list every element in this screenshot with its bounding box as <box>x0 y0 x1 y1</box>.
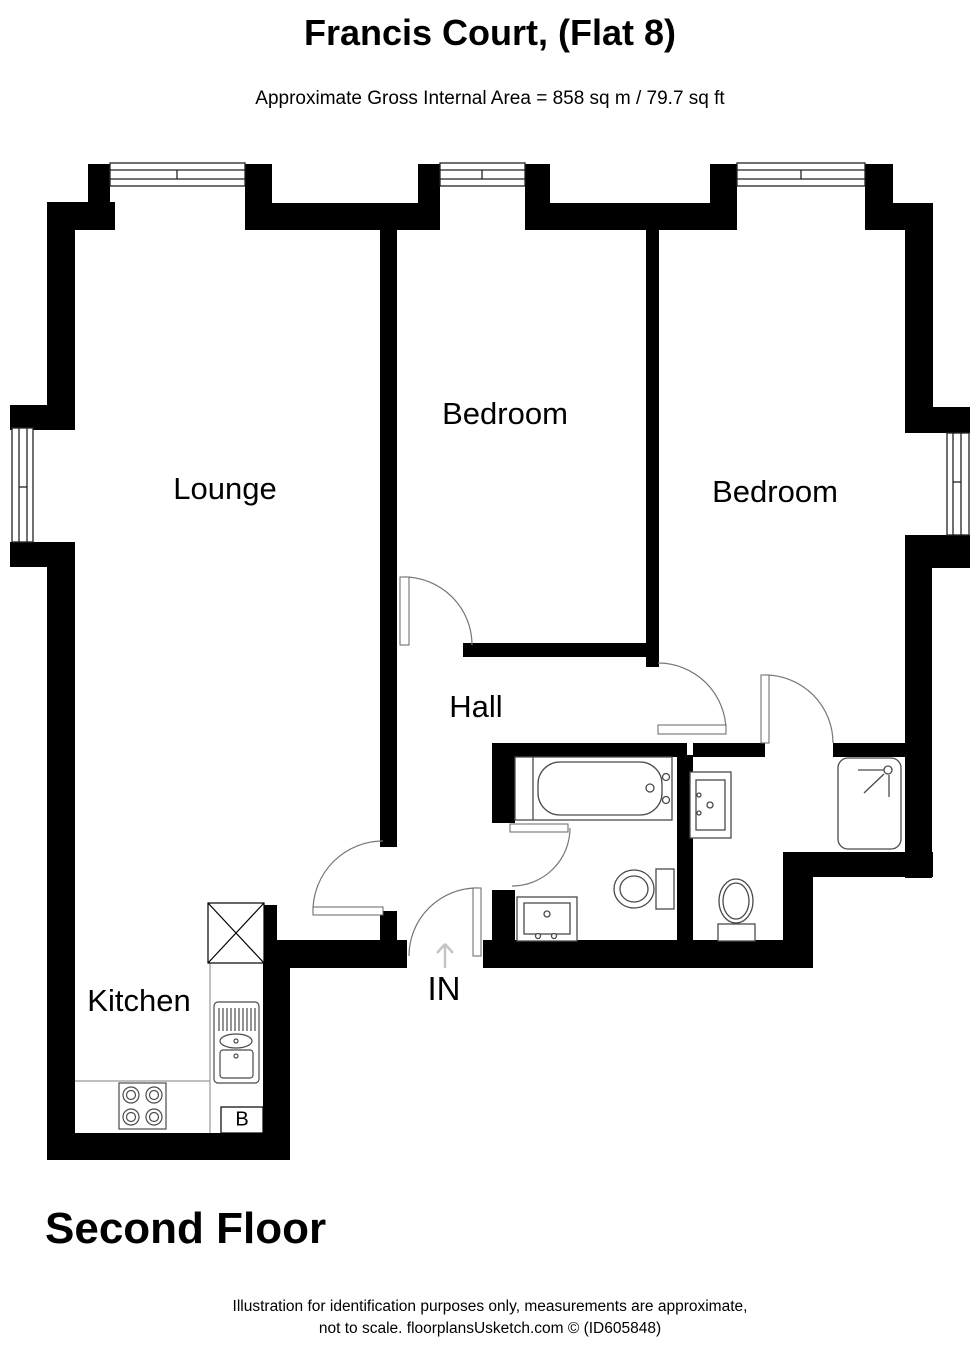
bedroom-middle-front-window <box>440 163 525 186</box>
room-label-kitchen: Kitchen <box>87 983 190 1019</box>
hob <box>119 1083 166 1129</box>
bedroom-right-front-window <box>737 163 865 186</box>
bathroom-toilet <box>614 869 674 909</box>
floorplan-drawing <box>0 0 980 1364</box>
ensuite-door-leaf <box>761 675 769 743</box>
footer-line-1: Illustration for identification purposes… <box>0 1296 980 1318</box>
ensuite-sink <box>690 772 731 838</box>
lounge-front-window <box>110 163 245 186</box>
ensuite-toilet <box>718 879 755 941</box>
floorplan-page: Francis Court, (Flat 8) Approximate Gros… <box>0 0 980 1364</box>
room-label-bedroom-middle: Bedroom <box>442 396 568 432</box>
bedroom-right-door-leaf <box>658 725 726 734</box>
kitchen-sink <box>214 1002 259 1083</box>
storage-box <box>208 903 264 963</box>
room-label-hall: Hall <box>449 689 502 725</box>
bathtub <box>515 757 672 820</box>
ensuite-door-arc <box>765 675 833 743</box>
footer-disclaimer: Illustration for identification purposes… <box>0 1296 980 1340</box>
bedroom-middle-door-leaf <box>400 577 409 645</box>
lounge-side-window <box>12 428 33 542</box>
bedroom-right-door-arc <box>658 663 726 731</box>
bathroom-fixtures <box>515 757 901 941</box>
room-label-bedroom-right: Bedroom <box>712 474 838 510</box>
bedroom-right-side-window <box>947 433 969 535</box>
entrance-label: IN <box>428 970 461 1008</box>
entry-door-leaf <box>473 888 481 956</box>
bathroom-sink <box>517 897 577 941</box>
entry-arrow-icon <box>437 944 453 968</box>
floor-name: Second Floor <box>45 1204 326 1254</box>
bedroom-middle-door-arc <box>404 577 472 645</box>
bathroom-door-arc <box>512 828 570 886</box>
bathroom-door-leaf <box>510 824 568 832</box>
lounge-door-leaf <box>313 907 383 915</box>
room-label-lounge: Lounge <box>173 471 276 507</box>
footer-line-2: not to scale. floorplansUsketch.com © (I… <box>0 1318 980 1340</box>
lounge-door-arc <box>313 841 383 911</box>
boiler-label: B <box>235 1109 248 1132</box>
shower-tray <box>838 758 901 849</box>
